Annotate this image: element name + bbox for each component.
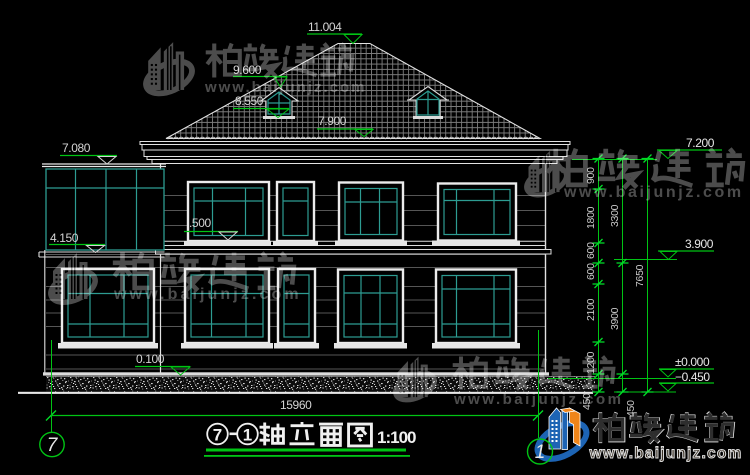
svg-text:3300: 3300 xyxy=(609,204,621,227)
svg-text:1: 1 xyxy=(243,426,252,445)
svg-text:7.900: 7.900 xyxy=(318,114,347,128)
svg-text:8.550: 8.550 xyxy=(235,94,264,108)
svg-text:3.900: 3.900 xyxy=(685,237,714,251)
svg-text:7.080: 7.080 xyxy=(62,141,91,155)
svg-text:4.150: 4.150 xyxy=(50,231,79,245)
svg-text:600: 600 xyxy=(585,242,597,259)
svg-text:www.baijunjz.com: www.baijunjz.com xyxy=(589,445,743,462)
svg-text:.500: .500 xyxy=(189,216,211,230)
svg-text:7: 7 xyxy=(213,426,222,445)
svg-text:±0.000: ±0.000 xyxy=(675,355,710,369)
svg-text:0.100: 0.100 xyxy=(136,352,165,366)
svg-text:7650: 7650 xyxy=(634,264,646,287)
svg-text:1: 1 xyxy=(535,442,546,463)
svg-text:15960: 15960 xyxy=(280,398,312,412)
svg-text:2100: 2100 xyxy=(585,298,597,321)
svg-text:7.200: 7.200 xyxy=(686,136,715,150)
svg-text:600: 600 xyxy=(585,263,597,280)
svg-text:11.004: 11.004 xyxy=(308,20,342,34)
svg-text:www.baijunjz.com: www.baijunjz.com xyxy=(563,184,744,201)
svg-text:1:100: 1:100 xyxy=(377,428,416,447)
svg-text:1800: 1800 xyxy=(585,206,597,229)
svg-text:www.baijunjz.com: www.baijunjz.com xyxy=(204,79,366,96)
svg-text:7: 7 xyxy=(47,435,59,456)
svg-text:−0.450: −0.450 xyxy=(675,370,710,384)
svg-text:www.baijunjz.com: www.baijunjz.com xyxy=(113,286,302,303)
svg-text:3900: 3900 xyxy=(609,307,621,330)
svg-text:www.baijunjz.com: www.baijunjz.com xyxy=(453,391,623,408)
